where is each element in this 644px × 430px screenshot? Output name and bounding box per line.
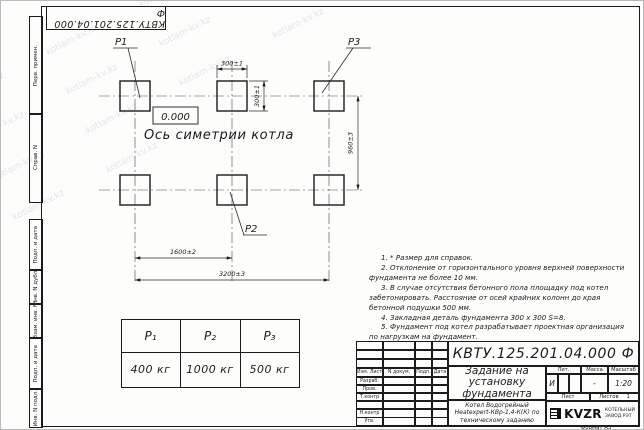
note-item: 4. Закладная деталь фундамента 300 х 300… (369, 313, 635, 323)
level-mark: 0.000 (161, 112, 190, 123)
load-table-header-p1: P₁ (121, 319, 181, 353)
load-table-value-p2: 1000 кг (180, 352, 241, 388)
note-item: 2. Отклонение от горизонтального уровня … (369, 263, 635, 283)
kvzr-logo-text: KVZR (564, 407, 602, 421)
note-item: 3. В случае отсутствия бетонного пола пл… (369, 283, 635, 313)
label-p2: P2 (245, 224, 257, 235)
company-name: КОТЕЛЬНЫЙ ЗАВОД РЭТ (605, 408, 635, 419)
leader-p1 (128, 48, 140, 98)
rev-cell (432, 417, 449, 426)
load-table-value-p3: 500 кг (240, 352, 300, 388)
rev-cell (415, 417, 433, 426)
product-description: Котел Водогрейный Heatexpert-КВр-1,4-К(К… (448, 400, 546, 426)
dim-full-span: 3200±3 (219, 270, 245, 278)
lit-cell-2 (558, 374, 569, 393)
load-table-header-p3: P₃ (240, 319, 300, 353)
sheets-label: Листов (599, 394, 618, 400)
sheets-cell: Листов 1 (590, 393, 639, 401)
load-table-value-p1: 400 кг (121, 352, 181, 388)
label-p3: P3 (348, 37, 360, 48)
lit-cell-3 (569, 374, 581, 393)
sheet-label: Лист (546, 393, 590, 401)
role-utv: Утв. (356, 417, 384, 426)
notes-block: 1. * Размер для справок. 2. Отклонение о… (369, 253, 635, 342)
mass-label: Масса (581, 366, 608, 374)
lit-label: Лит. (546, 366, 581, 374)
dim-half-span: 1600±2 (170, 248, 196, 256)
revision-table: Изм. Лист N докум. Подп. Дата Разраб. Пр… (356, 341, 448, 426)
sheets-value: 1 (627, 394, 630, 400)
axis-caption: Ось симетрии котла (144, 128, 294, 143)
load-table: P₁ P₂ P₃ 400 кг 1000 кг 500 кг (121, 319, 299, 387)
load-table-header-p2: P₂ (180, 319, 241, 353)
document-designation: КВТУ.125.201.04.000 Ф (448, 341, 639, 366)
mass-value: - (581, 374, 608, 393)
company-logo: KVZR КОТЕЛЬНЫЙ ЗАВОД РЭТ (550, 407, 635, 421)
dim-pad-height: 300±1 (253, 85, 261, 107)
dim-row-pitch: 960±3 (347, 132, 355, 154)
scale-value: 1:20 (608, 374, 639, 393)
company-cell: KVZR КОТЕЛЬНЫЙ ЗАВОД РЭТ (546, 401, 639, 426)
drawing-sheet: kotlam-kv.kzkotlam-kv.kzkotlam-kv.kzkotl… (0, 0, 644, 430)
rev-cell (383, 417, 416, 426)
note-item: 5. Фундамент под котел разрабатывает про… (369, 322, 635, 342)
format-label: Формат А3 (553, 425, 639, 430)
label-p1: P1 (115, 37, 127, 48)
note-item: 1. * Размер для справок. (369, 253, 635, 263)
leader-p3 (322, 48, 353, 93)
kvzr-logo-icon (550, 408, 561, 419)
document-title: Задание на установку фундамента (448, 366, 546, 400)
lit-value: И (546, 374, 558, 393)
scale-label: Масштаб (608, 366, 639, 374)
dim-pad-width: 300±1 (221, 60, 243, 68)
title-block: Изм. Лист N докум. Подп. Дата Разраб. Пр… (356, 341, 639, 426)
